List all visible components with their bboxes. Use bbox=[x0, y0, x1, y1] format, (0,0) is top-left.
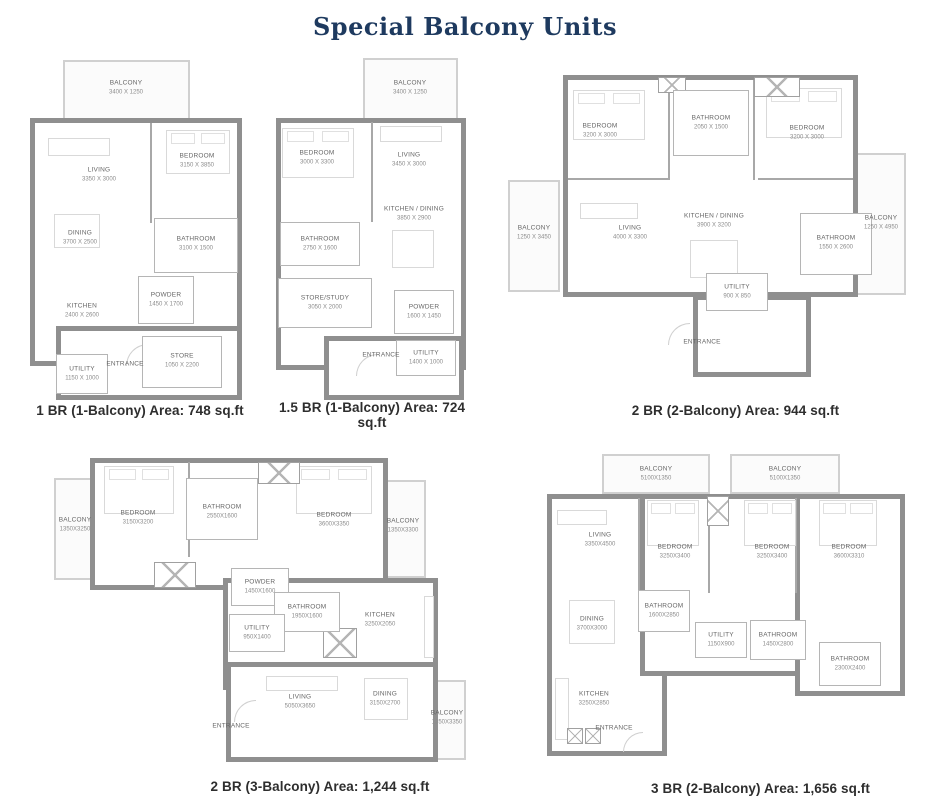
room-name: BALCONY bbox=[394, 80, 426, 89]
plan-caption-5: 3 BR (2-Balcony) Area: 1,656 sq.ft bbox=[593, 781, 928, 796]
room-label-bedroom-left: BEDROOM3200 X 3000 bbox=[583, 123, 618, 140]
room-label-bedroom-right: BEDROOM3200 X 3000 bbox=[790, 125, 825, 142]
furniture-kitchen-counter bbox=[424, 596, 434, 658]
room-dims: 1400 X 1000 bbox=[409, 358, 443, 366]
room-label-balcony-left: BALCONY1250 X 3450 bbox=[517, 225, 551, 242]
shaft-box bbox=[707, 496, 729, 526]
room-label-entrance: ENTRANCE bbox=[212, 723, 249, 732]
room-label-dining: DINING3150X2700 bbox=[370, 691, 401, 708]
room-name: BEDROOM bbox=[583, 123, 618, 132]
room-label-bathroom-1: BATHROOM1600X2850 bbox=[645, 603, 684, 620]
room-name: STORE/STUDY bbox=[301, 295, 349, 304]
room-label-bathroom-top: BATHROOM2050 X 1500 bbox=[692, 115, 731, 132]
room-label-bathroom-mid: BATHROOM1950X1600 bbox=[288, 604, 327, 621]
room-label-balcony-2: BALCONY5100X1350 bbox=[769, 466, 801, 483]
room-dims: 3600X3350 bbox=[319, 520, 350, 528]
shaft-box bbox=[154, 562, 196, 588]
room-name: KITCHEN bbox=[365, 612, 395, 621]
room-name: UTILITY bbox=[413, 350, 439, 359]
plan-caption-2: 1.5 BR (1-Balcony) Area: 724 sq.ft bbox=[266, 400, 478, 430]
room-name: BALCONY bbox=[110, 80, 142, 89]
room-label-bathroom: BATHROOM2750 X 1600 bbox=[301, 236, 340, 253]
furniture-sofa bbox=[266, 676, 338, 691]
room-label-entrance: ENTRANCE bbox=[595, 725, 632, 734]
room-dims: 1550 X 2600 bbox=[819, 243, 853, 251]
page: Special Balcony Units BALCONY3400 X 1250… bbox=[0, 0, 930, 805]
room-label-utility: UTILITY1150 X 1000 bbox=[65, 366, 99, 383]
room-name: BALCONY bbox=[640, 466, 672, 475]
room-dims: 1450 X 1700 bbox=[149, 300, 183, 308]
shaft-box bbox=[754, 77, 800, 97]
room-dims: 2550X1600 bbox=[207, 512, 238, 520]
room-name: UTILITY bbox=[724, 284, 750, 293]
room-name: BEDROOM bbox=[121, 510, 156, 519]
room-label-dining: DINING3700X3000 bbox=[577, 616, 608, 633]
room-label-kitchen: KITCHEN3250X2850 bbox=[579, 691, 610, 708]
room-name: UTILITY bbox=[69, 366, 95, 375]
room-name: KITCHEN / DINING bbox=[684, 213, 744, 222]
room-label-bedroom-left: BEDROOM3150X3200 bbox=[121, 510, 156, 527]
room-label-living: LIVING4000 X 3300 bbox=[613, 225, 647, 242]
room-name: BALCONY bbox=[387, 518, 419, 527]
wall-partition bbox=[668, 80, 670, 180]
room-dims: 1150 X 1000 bbox=[65, 374, 99, 382]
room-dims: 3250X2050 bbox=[365, 620, 396, 628]
room-name: BATHROOM bbox=[177, 236, 216, 245]
room-label-balcony-1: BALCONY5100X1350 bbox=[640, 466, 672, 483]
room-label-entrance: ENTRANCE bbox=[683, 339, 720, 348]
wall-partition bbox=[371, 122, 373, 222]
room-label-store-study: STORE/STUDY3050 X 2000 bbox=[301, 295, 349, 312]
room-dims: 3250X3400 bbox=[660, 552, 691, 560]
room-label-powder: POWDER1450 X 1700 bbox=[149, 292, 183, 309]
room-dims: 3350X4500 bbox=[585, 540, 616, 548]
room-dims: 3050 X 2000 bbox=[308, 303, 342, 311]
wall-partition bbox=[758, 178, 853, 180]
room-label-powder: POWDER1450X1600 bbox=[245, 579, 276, 596]
room-name: BEDROOM bbox=[300, 150, 335, 159]
floorplan-2br-3balcony: BALCONY1350X3250 BEDROOM3150X3200 BATHRO… bbox=[28, 450, 468, 778]
room-label-bathroom-top: BATHROOM2550X1600 bbox=[203, 504, 242, 521]
room-label-kitchen: KITCHEN3250X2050 bbox=[365, 612, 396, 629]
room-dims: 1250 X 4950 bbox=[864, 223, 898, 231]
room-name: LIVING bbox=[289, 694, 312, 703]
room-label-bedroom-2: BEDROOM3250X3400 bbox=[755, 544, 790, 561]
room-dims: 1450X2800 bbox=[763, 640, 794, 648]
room-label-bedroom-3: BEDROOM3600X3310 bbox=[832, 544, 867, 561]
room-label-utility: UTILITY1150X900 bbox=[708, 632, 735, 649]
room-name: KITCHEN / DINING bbox=[384, 206, 444, 215]
room-dims: 5050X3650 bbox=[285, 702, 316, 710]
room-dims: 950X1400 bbox=[243, 633, 270, 641]
room-dims: 1950X1600 bbox=[292, 612, 323, 620]
room-dims: 3150X3200 bbox=[123, 518, 154, 526]
wall-partition bbox=[638, 498, 640, 593]
room-name: ENTRANCE bbox=[683, 339, 720, 348]
room-dims: 1150X900 bbox=[708, 640, 735, 648]
room-name: BALCONY bbox=[431, 710, 463, 719]
room-name: BATHROOM bbox=[301, 236, 340, 245]
room-dims: 5100X1350 bbox=[770, 474, 801, 482]
room-name: BEDROOM bbox=[317, 512, 352, 521]
furniture-bed bbox=[296, 466, 372, 514]
floorplan-1-5br: BALCONY3400 X 1250 BEDROOM3000 X 3300 LI… bbox=[268, 58, 473, 405]
room-label-balcony-left: BALCONY1350X3250 bbox=[59, 517, 91, 534]
shaft-box bbox=[258, 462, 300, 484]
room-name: BALCONY bbox=[769, 466, 801, 475]
room-label-utility: UTILITY950X1400 bbox=[243, 625, 270, 642]
furniture-sofa bbox=[48, 138, 110, 156]
room-name: BALCONY bbox=[59, 517, 91, 526]
room-label-living: LIVING3350X4500 bbox=[585, 532, 616, 549]
plan-caption-4: 2 BR (3-Balcony) Area: 1,244 sq.ft bbox=[150, 779, 490, 794]
furniture-dining-table bbox=[392, 230, 434, 268]
room-label-bedroom-1: BEDROOM3250X3400 bbox=[658, 544, 693, 561]
floorplan-1br: BALCONY3400 X 1250 LIVING3350 X 3000 BED… bbox=[30, 58, 245, 405]
room-name: BALCONY bbox=[518, 225, 550, 234]
room-name: BEDROOM bbox=[658, 544, 693, 553]
room-name: DINING bbox=[580, 616, 604, 625]
room-name: STORE bbox=[170, 353, 193, 362]
room-label-bathroom-3: BATHROOM2300X2400 bbox=[831, 656, 870, 673]
furniture-sofa bbox=[557, 510, 607, 525]
room-dims: 3250X2850 bbox=[579, 699, 610, 707]
page-title: Special Balcony Units bbox=[0, 12, 930, 41]
room-dims: 1350X3350 bbox=[432, 718, 463, 726]
room-name: BEDROOM bbox=[755, 544, 790, 553]
room-name: ENTRANCE bbox=[362, 352, 399, 361]
room-dims: 900 X 850 bbox=[723, 292, 750, 300]
furniture-bed bbox=[647, 500, 699, 546]
room-label-bathroom: BATHROOM3100 X 1500 bbox=[177, 236, 216, 253]
room-label-dining: DINING3700 X 2500 bbox=[63, 230, 97, 247]
floorplan-2br-2balcony: BEDROOM3200 X 3000 BATHROOM2050 X 1500 B… bbox=[508, 75, 908, 397]
room-name: BEDROOM bbox=[832, 544, 867, 553]
room-dims: 3600X3310 bbox=[834, 552, 865, 560]
furniture-bed bbox=[104, 466, 174, 514]
room-label-living: LIVING3450 X 3000 bbox=[392, 152, 426, 169]
room-name: UTILITY bbox=[708, 632, 734, 641]
room-label-kitchen: KITCHEN2400 X 2600 bbox=[65, 303, 99, 320]
room-dims: 3400 X 1250 bbox=[393, 88, 427, 96]
room-label-balcony-right: BALCONY1350X3300 bbox=[387, 518, 419, 535]
room-dims: 3700 X 2500 bbox=[63, 238, 97, 246]
room-label-bedroom: BEDROOM3000 X 3300 bbox=[300, 150, 335, 167]
room-label-store: STORE1050 X 2200 bbox=[165, 353, 199, 370]
room-name: LIVING bbox=[88, 167, 111, 176]
room-name: BATHROOM bbox=[203, 504, 242, 513]
room-name: BATHROOM bbox=[288, 604, 327, 613]
room-label-balcony: BALCONY3400 X 1250 bbox=[109, 80, 143, 97]
room-dims: 3450 X 3000 bbox=[392, 160, 426, 168]
room-dims: 3000 X 3300 bbox=[300, 158, 334, 166]
room-name: POWDER bbox=[409, 304, 439, 313]
room-name: ENTRANCE bbox=[212, 723, 249, 732]
room-dims: 1450X1600 bbox=[245, 587, 276, 595]
room-name: LIVING bbox=[398, 152, 421, 161]
room-dims: 3200 X 3000 bbox=[790, 133, 824, 141]
room-dims: 3400 X 1250 bbox=[109, 88, 143, 96]
room-dims: 1250 X 3450 bbox=[517, 233, 551, 241]
furniture-bed bbox=[744, 500, 796, 546]
room-dims: 2750 X 1600 bbox=[303, 244, 337, 252]
room-name: BATHROOM bbox=[817, 235, 856, 244]
wall-partition bbox=[568, 178, 668, 180]
wall-partition bbox=[150, 123, 152, 223]
room-dims: 3100 X 1500 bbox=[179, 244, 213, 252]
room-dims: 2400 X 2600 bbox=[65, 311, 99, 319]
room-label-powder: POWDER1600 X 1450 bbox=[407, 304, 441, 321]
room-label-balcony: BALCONY3400 X 1250 bbox=[393, 80, 427, 97]
room-name: BATHROOM bbox=[831, 656, 870, 665]
room-name: POWDER bbox=[245, 579, 275, 588]
room-label-bedroom-right: BEDROOM3600X3350 bbox=[317, 512, 352, 529]
room-name: LIVING bbox=[589, 532, 612, 541]
room-label-balcony-right: BALCONY1250 X 4950 bbox=[864, 215, 898, 232]
room-name: DINING bbox=[68, 230, 92, 239]
room-dims: 1050 X 2200 bbox=[165, 361, 199, 369]
room-dims: 1350X3300 bbox=[388, 526, 419, 534]
room-dims: 1600X2850 bbox=[649, 611, 680, 619]
room-name: DINING bbox=[373, 691, 397, 700]
room-dims: 2300X2400 bbox=[835, 664, 866, 672]
room-name: BEDROOM bbox=[180, 153, 215, 162]
room-label-bathroom-2: BATHROOM1450X2800 bbox=[759, 632, 798, 649]
room-dims: 1600 X 1450 bbox=[407, 312, 441, 320]
room-dims: 3150 X 3850 bbox=[180, 161, 214, 169]
room-dims: 5100X1350 bbox=[641, 474, 672, 482]
room-dims: 3350 X 3000 bbox=[82, 175, 116, 183]
room-name: UTILITY bbox=[244, 625, 270, 634]
room-dims: 1350X3250 bbox=[60, 525, 91, 533]
room-name: ENTRANCE bbox=[595, 725, 632, 734]
room-name: ENTRANCE bbox=[106, 361, 143, 370]
furniture-sofa bbox=[580, 203, 638, 219]
room-name: POWDER bbox=[151, 292, 181, 301]
room-dims: 4000 X 3300 bbox=[613, 233, 647, 241]
floorplan-3br: BALCONY5100X1350 BALCONY5100X1350 LIVING… bbox=[545, 452, 913, 764]
room-label-entrance: ENTRANCE bbox=[106, 361, 143, 370]
room-dims: 3850 X 2900 bbox=[397, 214, 431, 222]
room-dims: 2050 X 1500 bbox=[694, 123, 728, 131]
shaft-box bbox=[323, 628, 357, 658]
room-label-balcony-bottom: BALCONY1350X3350 bbox=[431, 710, 463, 727]
room-label-bedroom: BEDROOM3150 X 3850 bbox=[180, 153, 215, 170]
room-dims: 3150X2700 bbox=[370, 699, 401, 707]
room-label-utility: UTILITY1400 X 1000 bbox=[409, 350, 443, 367]
room-dims: 3200 X 3000 bbox=[583, 131, 617, 139]
room-name: BATHROOM bbox=[645, 603, 684, 612]
room-name: KITCHEN bbox=[67, 303, 97, 312]
room-label-entrance: ENTRANCE bbox=[362, 352, 399, 361]
room-name: BALCONY bbox=[865, 215, 897, 224]
room-name: BEDROOM bbox=[790, 125, 825, 134]
room-label-living: LIVING5050X3650 bbox=[285, 694, 316, 711]
furniture-bed bbox=[819, 500, 877, 546]
room-name: BATHROOM bbox=[759, 632, 798, 641]
room-label-kitchen-dining: KITCHEN / DINING3850 X 2900 bbox=[384, 206, 444, 223]
furniture-sofa bbox=[380, 126, 442, 142]
room-dims: 3900 X 3200 bbox=[697, 221, 731, 229]
shaft-box bbox=[567, 728, 583, 744]
room-name: KITCHEN bbox=[579, 691, 609, 700]
room-label-living: LIVING3350 X 3000 bbox=[82, 167, 116, 184]
plan-caption-1: 1 BR (1-Balcony) Area: 748 sq.ft bbox=[30, 403, 250, 418]
room-name: BATHROOM bbox=[692, 115, 731, 124]
room-dims: 3250X3400 bbox=[757, 552, 788, 560]
room-label-utility: UTILITY900 X 850 bbox=[723, 284, 750, 301]
room-label-kitchen-dining: KITCHEN / DINING3900 X 3200 bbox=[684, 213, 744, 230]
room-dims: 3700X3000 bbox=[577, 624, 608, 632]
plan-caption-3: 2 BR (2-Balcony) Area: 944 sq.ft bbox=[588, 403, 883, 418]
room-label-bathroom-right: BATHROOM1550 X 2600 bbox=[817, 235, 856, 252]
room-name: LIVING bbox=[619, 225, 642, 234]
